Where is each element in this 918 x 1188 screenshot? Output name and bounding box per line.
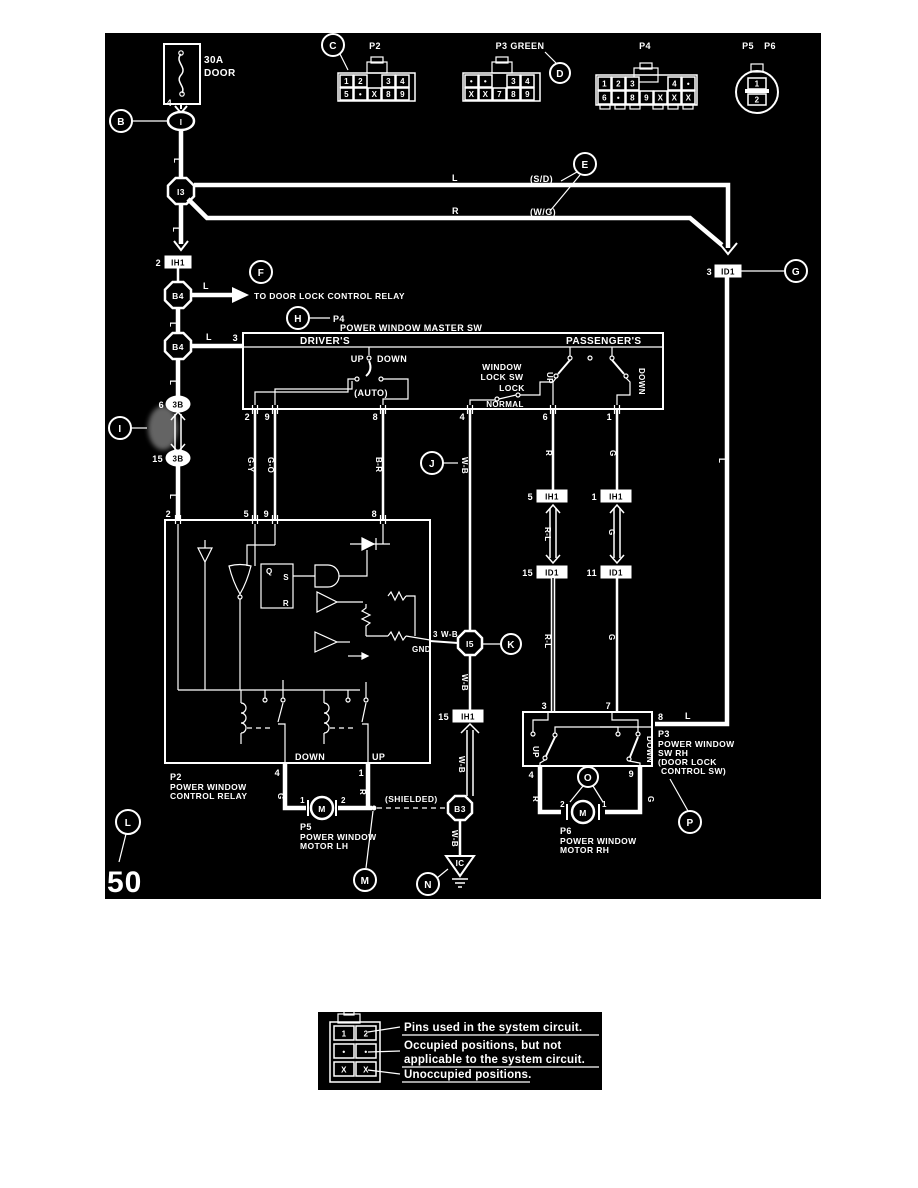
wire-label-g-3: G [607, 634, 616, 641]
p2-cell: 2 [358, 77, 363, 86]
callout-p-label: P [686, 818, 693, 829]
relay-pin-3: 3 [433, 630, 438, 639]
callout-j-label: J [429, 459, 435, 470]
p4-cell: X [658, 94, 664, 103]
connector-p6-title: P6 [764, 41, 776, 51]
ih1-d-name: IH1 [461, 713, 475, 722]
wire-label-r-bus: R [452, 206, 459, 216]
motor-lh-pin1: 1 [300, 796, 305, 805]
master-pin-2: 2 [245, 412, 250, 422]
callout-b-label: B [117, 117, 125, 128]
id1-c-pin: 11 [587, 568, 597, 578]
wire-label-r-rh: R [531, 796, 540, 802]
p2-cell: 3 [386, 77, 391, 86]
motor-rh-pin2: 2 [560, 800, 565, 809]
p4-cell: 8 [630, 94, 635, 103]
master-sw-title: POWER WINDOW MASTER SW [340, 323, 482, 333]
wire-label-g-lh: G [276, 793, 285, 800]
p4-cell: • [687, 80, 690, 89]
p3-cell: 7 [497, 90, 502, 99]
wire-label-br: B-R [374, 457, 383, 472]
callout-n-label: N [424, 880, 432, 891]
p2-cell: 9 [400, 90, 405, 99]
swrh-pin-4b: 4 [529, 770, 534, 780]
inline-connector-id1-right: 3 ID1 [707, 265, 741, 277]
callout-g-label: G [792, 267, 800, 278]
callout-h-label: H [294, 314, 302, 325]
relay-pin-1: 1 [359, 768, 364, 778]
p4-cell: X [672, 94, 678, 103]
legend-cell: 2 [364, 1030, 369, 1039]
id1-right-pin: 3 [707, 267, 712, 277]
motor-rh-ref: P6 [560, 826, 572, 836]
wire-label-l-right: L [717, 458, 726, 463]
wire-label-rl-2: R-L [543, 634, 552, 649]
wire-label-wb-3: W-B [457, 756, 466, 773]
id1-b-name: ID1 [545, 569, 559, 578]
swrh-pin-8: 8 [658, 712, 663, 722]
wire-label-go: G-O [266, 457, 275, 473]
motor-rh-m: M [579, 808, 586, 818]
node-top-label: I [180, 118, 183, 127]
p4-cell: X [686, 94, 692, 103]
fuse-rating-label: 30A [204, 55, 224, 66]
connector-p5-title: P5 [742, 41, 754, 51]
p2-cell: 5 [344, 90, 349, 99]
relay-pin-4: 4 [275, 768, 280, 778]
p3-cell: X [483, 90, 489, 99]
wire-label-l3: L [168, 322, 177, 327]
p4-cell: 4 [672, 80, 677, 89]
legend-line2: Occupied positions, but not [404, 1040, 561, 1052]
page-number: 50 [107, 866, 142, 899]
id1-right-name: ID1 [721, 268, 735, 277]
p3-cell: 9 [525, 90, 530, 99]
motor-lh-pin2: 2 [341, 796, 346, 805]
fuse-name-label: DOOR [204, 68, 236, 79]
master-pin-8: 8 [373, 412, 378, 422]
callout-o-label: O [584, 773, 592, 784]
swrh-pin-3: 3 [542, 701, 547, 711]
node-top-oval: I [168, 112, 194, 130]
ih1-left-name: IH1 [171, 259, 185, 268]
p5p6-pin1: 1 [755, 80, 760, 89]
p3-cell: X [469, 90, 475, 99]
wire-label-gy: G-Y [246, 457, 255, 473]
p3-cell: 8 [511, 90, 516, 99]
shielded-label: (SHIELDED) [385, 794, 438, 804]
passenger-up-label: UP [545, 372, 554, 384]
junction-i5: I5 [458, 631, 482, 655]
p3-cell: 4 [525, 77, 530, 86]
connector-p2-title: P2 [369, 41, 381, 51]
callout-d-label: D [556, 69, 564, 80]
wire-label-l-branch: L [203, 281, 209, 291]
callout-f-label: F [258, 268, 265, 279]
junction-b3-label: B3 [454, 804, 466, 814]
swrh-down-label: DOWN [645, 736, 654, 763]
p4-cell: • [617, 94, 620, 103]
swrh-ref: P3 [658, 729, 670, 739]
ff-s-label: S [283, 573, 289, 582]
callout-i-label: I [118, 424, 121, 435]
legend-line1: Pins used in the system circuit. [404, 1022, 582, 1034]
callout-m: M [354, 869, 376, 891]
relay-pin-2: 2 [166, 509, 171, 519]
callout-l-label: L [125, 818, 132, 829]
swrh-pin-9b: 9 [629, 769, 634, 779]
window-lock-normal-label: NORMAL [486, 400, 524, 409]
wire-label-r-lh: R [358, 789, 367, 795]
callout-k-label: K [507, 640, 515, 651]
p2-cell: 1 [344, 77, 349, 86]
id1-c-name: ID1 [609, 569, 623, 578]
callout-c-label: C [329, 41, 337, 52]
window-lock-line1: WINDOW [482, 362, 522, 372]
wire-label-g-2: G [607, 529, 616, 536]
wire-label-sd: (S/D) [530, 174, 553, 184]
relay-up-label: UP [372, 752, 385, 762]
wire-label-g-rh: G [646, 796, 655, 803]
p4-cell: 3 [630, 80, 635, 89]
legend-cell: 1 [342, 1030, 347, 1039]
manual-page: 30A DOOR 4 B I L I3 L (S/D) R (W/G) E [0, 0, 918, 1188]
p4-cell: 9 [644, 94, 649, 103]
drivers-auto-label: (AUTO) [354, 388, 388, 398]
drivers-up-label: UP [351, 354, 364, 364]
fuse-pin-label: 4 [167, 98, 172, 108]
p3-cell: 3 [511, 77, 516, 86]
relay-down-label: DOWN [295, 752, 325, 762]
wire-label-wb-4: W-B [450, 830, 459, 847]
ground-ic-label: IC [456, 859, 465, 868]
callout-f: F [250, 261, 272, 283]
wire-label-l-bus: L [452, 173, 458, 183]
p2-cell: X [372, 90, 378, 99]
motor-rh-name2: MOTOR RH [560, 845, 609, 855]
junction-b4-lower: B4 [165, 333, 191, 359]
motor-lh-ref: P5 [300, 822, 312, 832]
p4-cell: 2 [616, 80, 621, 89]
wire-label-l2: L [171, 227, 180, 232]
ih1-left-pin: 2 [156, 258, 161, 268]
master-pin-4: 4 [460, 412, 465, 422]
callout-m-label: M [361, 876, 370, 887]
inline-connector-ih1-left: 2 IH1 [156, 256, 191, 268]
ih1-b-name: IH1 [545, 493, 559, 502]
swrh-up-label: UP [531, 746, 540, 758]
connector-p3-title: P3 GREEN [496, 41, 545, 51]
junction-b4-upper: B4 [165, 282, 191, 308]
wire-label-l4: L [206, 332, 212, 342]
passengers-label: PASSENGER'S [566, 336, 642, 347]
p3-cell: • [470, 77, 473, 86]
oval-3b-lower-pin: 15 [152, 454, 163, 464]
legend-cell: • [342, 1048, 345, 1057]
relay-pin-5: 5 [244, 509, 249, 519]
p5p6-pin2: 2 [755, 96, 760, 105]
wire-label-rl-1: R-L [543, 527, 552, 542]
p4-cell: 6 [602, 94, 607, 103]
junction-b4a-label: B4 [172, 291, 184, 301]
wire-label-l6: L [168, 494, 177, 499]
master-pin-6: 6 [543, 412, 548, 422]
wiring-diagram-svg: 30A DOOR 4 B I L I3 L (S/D) R (W/G) E [0, 0, 918, 1188]
ih1-c-pin: 1 [592, 492, 597, 502]
junction-i3-label: I3 [177, 187, 185, 197]
wire-label-l: L [172, 158, 181, 163]
relay-pin-8: 8 [372, 509, 377, 519]
connector-p4-title: P4 [639, 41, 651, 51]
oval-3b-upper-pin: 6 [159, 400, 164, 410]
passenger-down-label: DOWN [637, 368, 646, 395]
wire-label-wb-2: W-B [460, 674, 469, 691]
drivers-label: DRIVER'S [300, 336, 350, 347]
wire-label-g-col: G [608, 450, 617, 457]
wire-label-l5: L [168, 380, 177, 385]
legend-cell: X [341, 1066, 347, 1075]
oval-3b-lower-label: 3B [172, 455, 183, 464]
legend-line3: applicable to the system circuit. [404, 1054, 585, 1066]
window-lock-line2: LOCK SW [481, 372, 525, 382]
ff-q-label: Q [266, 567, 273, 576]
master-pin-1: 1 [607, 412, 612, 422]
motor-lh-name2: MOTOR LH [300, 841, 348, 851]
oval-3b-upper-label: 3B [172, 401, 183, 410]
motor-lh-m: M [318, 804, 325, 814]
legend-line4: Unoccupied positions. [404, 1069, 532, 1081]
gnd-label: GND [412, 645, 431, 654]
junction-i5-label: I5 [466, 639, 474, 649]
master-pin-in: 3 [233, 333, 238, 343]
p4-cell: 1 [602, 80, 607, 89]
ff-r-label: R [283, 599, 289, 608]
ih1-c-name: IH1 [609, 493, 623, 502]
legend-box: 1 2 • • X X Pins used in the system circ… [318, 1010, 602, 1090]
relay-ref: P2 [170, 772, 182, 782]
drivers-down-label: DOWN [377, 354, 407, 364]
wire-label-l-right2: L [685, 711, 691, 721]
p2-cell: 4 [400, 77, 405, 86]
junction-b4b-label: B4 [172, 342, 184, 352]
id1-b-pin: 15 [522, 568, 533, 578]
to-door-lock-text: TO DOOR LOCK CONTROL RELAY [254, 291, 405, 301]
legend-cell: • [364, 1048, 367, 1057]
harness-shade-blob [148, 406, 178, 450]
callout-e-label: E [581, 160, 588, 171]
relay-pin-9: 9 [264, 509, 269, 519]
p3-cell: • [484, 77, 487, 86]
p2-cell: 8 [386, 90, 391, 99]
wire-label-wb-1: W-B [460, 457, 469, 474]
relay-name2: CONTROL RELAY [170, 791, 247, 801]
master-pin-9: 9 [265, 412, 270, 422]
wire-label-wb-gnd: W-B [441, 630, 458, 639]
ih1-d-pin: 15 [438, 712, 449, 722]
p2-cell: • [359, 90, 362, 99]
swrh-pin-7: 7 [606, 701, 611, 711]
window-lock-lock-label: LOCK [499, 383, 525, 393]
swrh-name4: CONTROL SW) [661, 766, 726, 776]
wire-label-r-col: R [544, 450, 553, 456]
ih1-b-pin: 5 [528, 492, 533, 502]
